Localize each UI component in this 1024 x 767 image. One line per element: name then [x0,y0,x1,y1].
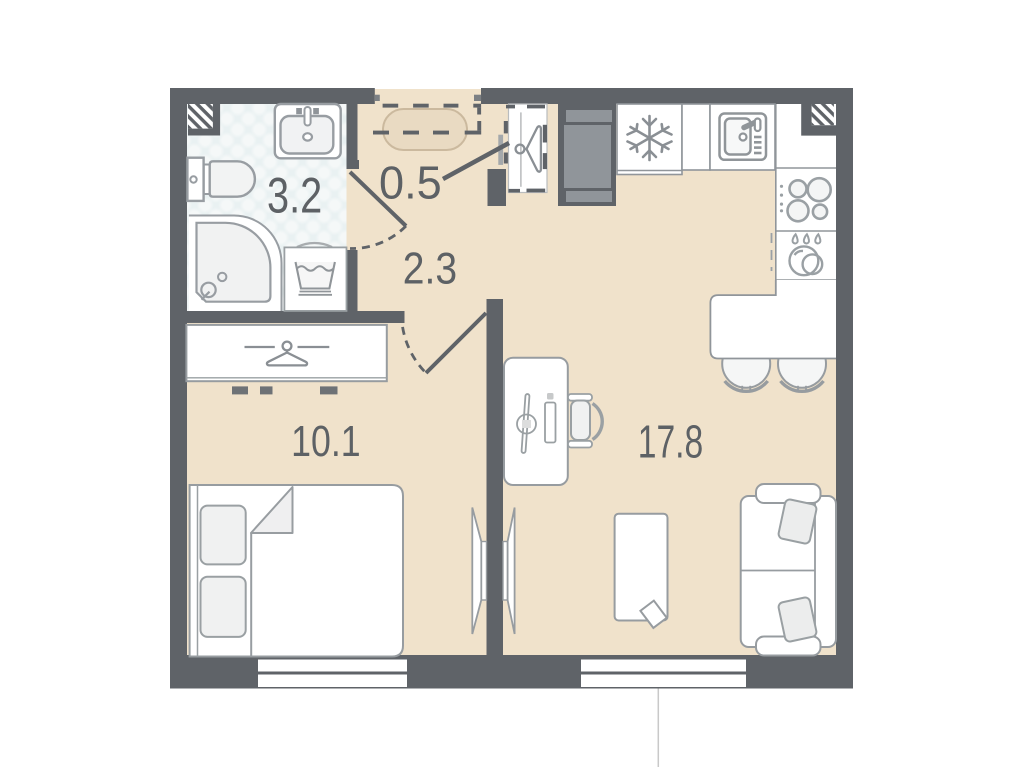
svg-text:17.8: 17.8 [638,416,704,468]
svg-text:3.2: 3.2 [267,167,322,223]
svg-text:10.1: 10.1 [291,417,361,466]
svg-text:0.5: 0.5 [379,157,442,209]
svg-text:2.3: 2.3 [403,244,457,293]
